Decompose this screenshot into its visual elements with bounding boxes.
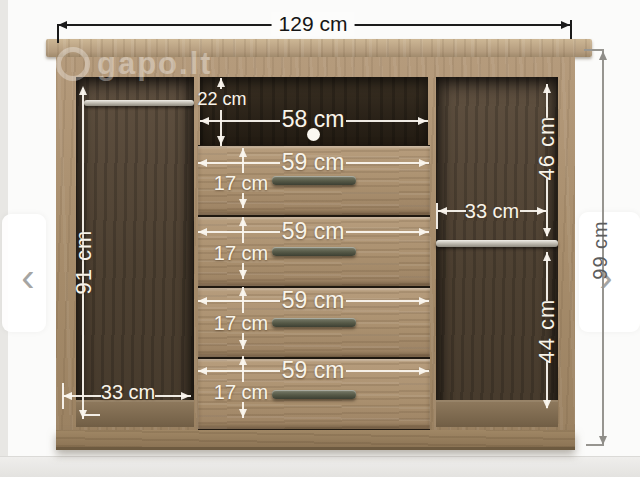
dim-58-line-b [346, 120, 428, 122]
dim-22-arrow-top [217, 78, 225, 87]
dim-44-arrow-top [543, 252, 551, 261]
dim-59-4-line-b [346, 370, 429, 372]
dim-44-arrow-bottom [543, 400, 551, 409]
dim-59-1-line-b [346, 162, 429, 164]
prev-image-button[interactable]: ‹ [21, 257, 34, 297]
left-hanging-rod [84, 100, 194, 106]
dim-59-3-arrow-left [198, 297, 207, 305]
dim-drawer1-height-label: 17 cm [214, 172, 268, 195]
dim-left-height-label: 91 cm [71, 230, 97, 295]
dim-17-4-arrow-bottom [239, 409, 247, 418]
dim-58-arrow-right [418, 117, 427, 125]
dim-58-arrow-left [200, 117, 209, 125]
dim-33L-arrow-right [181, 392, 190, 400]
dim-59-3-line-b [346, 300, 429, 302]
dim-right-lower-height-label: 44 cm [534, 299, 560, 364]
dim-59-3-arrow-right [419, 297, 428, 305]
dim-91-arrow-top [79, 86, 87, 95]
dim-17-3-arrow-bottom [239, 340, 247, 349]
dim-right-width-label: 33 cm [465, 200, 519, 223]
dim-58-line-a [200, 120, 280, 122]
dim-drawer4-height-label: 17 cm [214, 381, 268, 404]
dim-drawer4-width-label: 59 cm [282, 357, 345, 384]
dim-59-2-arrow-left [198, 228, 207, 236]
dim-right-upper-height-label: 46 cm [534, 116, 560, 181]
dim-129-hook-right [570, 20, 572, 39]
dim-drawer2-height-label: 17 cm [214, 242, 268, 265]
watermark-logo-icon [56, 47, 90, 81]
dim-99-arrow-top [599, 51, 607, 60]
dot-marker [307, 128, 320, 141]
dim-91-hook-bottom [84, 414, 100, 416]
dim-17-2-arrow-top [239, 217, 247, 226]
right-hanging-rod [436, 240, 558, 247]
dim-overall-width-label: 129 cm [272, 12, 355, 36]
drawer-1-handle[interactable] [272, 176, 356, 185]
dim-overall-height-label: 99 cm [589, 220, 612, 279]
dim-59-4-line-a [198, 370, 280, 372]
dim-59-1-arrow-left [198, 159, 207, 167]
dim-33R-arrow-right [537, 207, 546, 215]
dim-59-3-line-a [198, 300, 280, 302]
dim-59-4-arrow-right [419, 367, 428, 375]
dim-drawer3-width-label: 59 cm [282, 287, 345, 314]
right-compartment-floor [436, 400, 558, 427]
dim-17-1-arrow-bottom [239, 199, 247, 208]
watermark-text: gapo.lt [97, 46, 213, 82]
dim-59-1-arrow-right [419, 159, 428, 167]
dim-33R-arrow-left [438, 207, 447, 215]
dim-129-arrow-left [58, 21, 67, 29]
drawer-4-handle[interactable] [272, 390, 356, 399]
dim-17-4-arrow-top [239, 356, 247, 365]
dim-33L-arrow-left [63, 392, 72, 400]
dim-shelf-height-label: 22 cm [197, 89, 246, 110]
dim-99-arrow-bottom [599, 436, 607, 445]
dim-left-width-label: 33 cm [101, 381, 155, 404]
dim-59-2-arrow-right [419, 228, 428, 236]
drawer-3-handle[interactable] [272, 318, 356, 327]
dim-17-3-arrow-top [239, 287, 247, 296]
dim-59-1-line-a [198, 162, 280, 164]
bottom-edge-strip [0, 456, 640, 477]
image-viewer: gapo.lt 129 cm 99 cm 91 cm 33 cm 22 cm 5… [0, 0, 640, 477]
dim-17-1-arrow-top [239, 148, 247, 157]
drawer-2-handle[interactable] [272, 247, 356, 256]
dim-59-2-line-a [198, 231, 280, 233]
wardrobe-plinth [56, 430, 575, 450]
dim-46-arrow-top [543, 84, 551, 93]
dim-drawer3-height-label: 17 cm [214, 312, 268, 335]
dim-59-4-arrow-left [198, 367, 207, 375]
dim-22-arrow-bottom [217, 136, 225, 145]
dim-46-arrow-bottom [543, 228, 551, 237]
dim-drawer2-width-label: 59 cm [282, 218, 345, 245]
dim-17-2-arrow-bottom [239, 270, 247, 279]
dim-drawer1-width-label: 59 cm [282, 149, 345, 176]
dim-59-2-line-b [346, 231, 429, 233]
watermark: gapo.lt [56, 46, 213, 82]
dim-129-arrow-right [561, 21, 570, 29]
